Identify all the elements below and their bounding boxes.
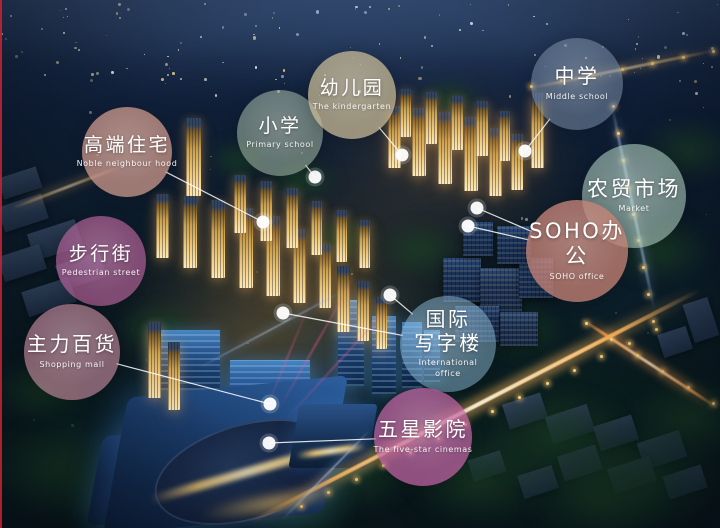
facility-name-en: Shopping mall [39,360,104,371]
facility-name-en: Market [618,204,649,215]
facility-name-en: SOHO office [550,272,605,283]
facility-name-zh: 农贸市场 [587,177,681,202]
facility-name-en: Internationaloffice [419,358,478,380]
facility-name-en: The kindergarten [313,102,392,113]
facility-bubble-shopping-mall: 主力百货Shopping mall [24,304,120,400]
facility-name-zh: 五星影院 [378,418,468,442]
facility-bubble-international-office: 国际写字楼Internationaloffice [400,296,496,392]
facility-name-zh: SOHO办公 [526,219,628,269]
facility-bubble-noble-residence: 高端住宅Noble neighbour hood [82,107,172,197]
facility-name-zh: 小学 [258,115,301,137]
facility-bubble-soho-office: SOHO办公SOHO office [526,200,628,302]
facility-bubble-middle-school: 中学Middle school [531,38,623,130]
facility-name-en: Middle school [546,92,608,103]
facility-bubble-pedestrian-street: 步行街Pedestrian street [56,216,146,306]
facility-labels: 高端住宅Noble neighbour hood小学Primary school… [0,0,720,528]
facility-name-zh: 中学 [555,65,600,89]
facility-name-en: Noble neighbour hood [77,159,178,170]
facility-bubble-five-star-cinema: 五星影院The five-star cinemas [374,388,472,486]
facility-name-en: The five-star cinemas [373,445,472,456]
facility-name-zh: 国际写字楼 [414,308,482,355]
facility-name-zh: 步行街 [69,243,134,265]
masterplan-aerial-image: 高端住宅Noble neighbour hood小学Primary school… [0,0,720,528]
facility-name-zh: 主力百货 [27,333,117,357]
facility-name-en: Primary school [246,140,314,151]
facility-bubble-kindergarten: 幼儿园The kindergarten [308,51,396,139]
facility-name-zh: 高端住宅 [84,134,170,156]
facility-name-en: Pedestrian street [62,268,140,279]
facility-name-zh: 幼儿园 [320,77,385,99]
